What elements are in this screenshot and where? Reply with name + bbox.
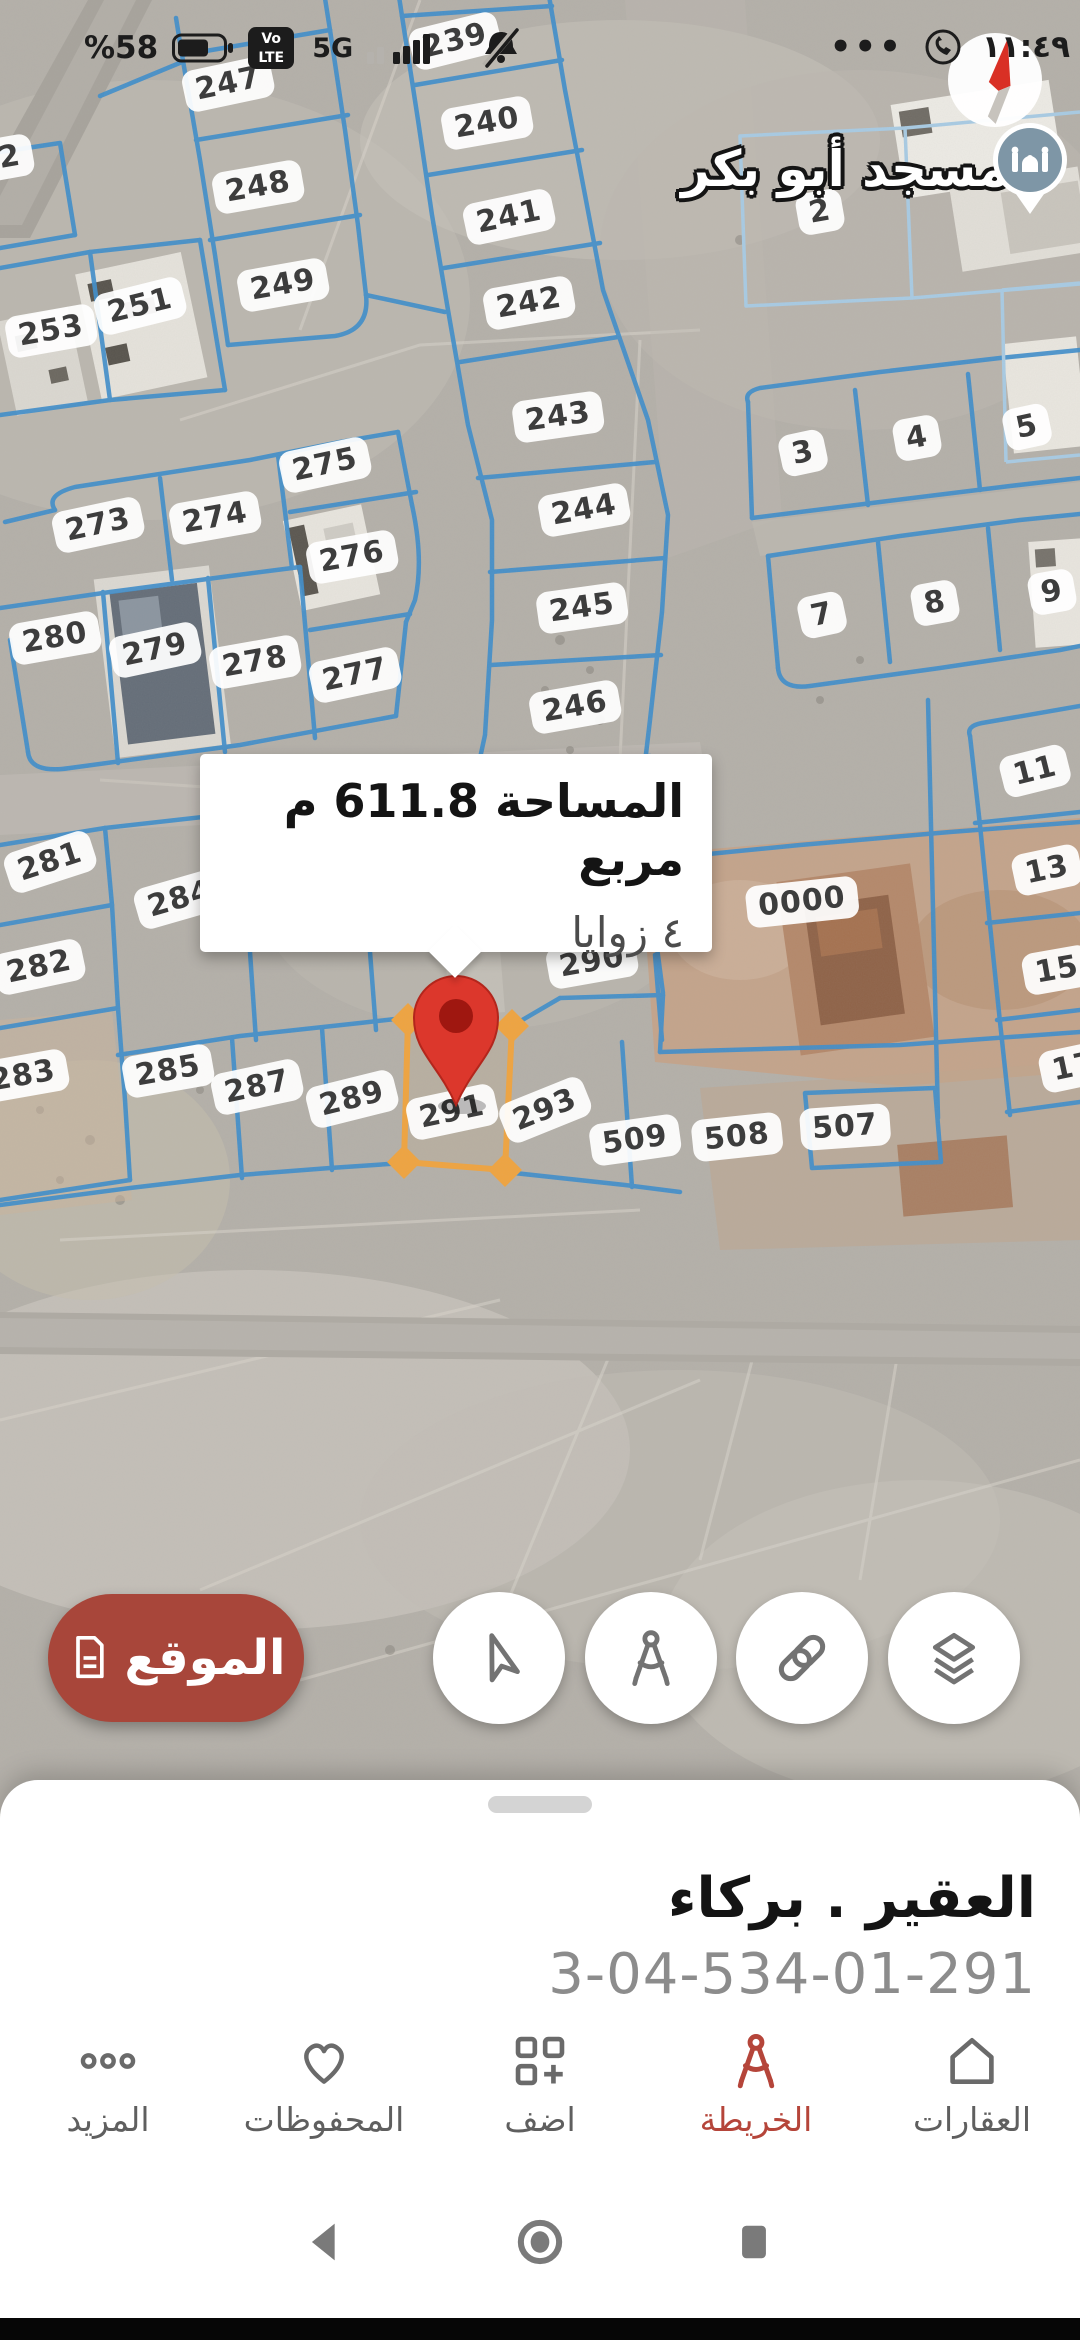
clock-time: ١١:٤٩: [982, 29, 1070, 65]
my-location-button[interactable]: [433, 1592, 565, 1724]
layers-button[interactable]: [888, 1592, 1020, 1724]
android-nav-bar: [0, 2166, 1080, 2318]
nav-item-map[interactable]: الخريطة: [648, 2016, 864, 2166]
share-link-button[interactable]: [736, 1592, 868, 1724]
nav-item-more[interactable]: المزيد: [0, 2016, 216, 2166]
nav-label-add: اضف: [504, 2100, 575, 2139]
link-icon: [770, 1626, 834, 1690]
mosque-label[interactable]: مسجد أبو بكر: [630, 140, 1060, 198]
heart-icon: [293, 2030, 355, 2092]
screen-bottom-bar: [0, 2318, 1080, 2340]
parcel-info-callout[interactable]: المساحة 611.8 م مربع ٤ زوايا: [200, 754, 712, 952]
drafting-compass-icon: [619, 1626, 683, 1690]
nav-label-properties: العقارات: [913, 2100, 1031, 2139]
status-bar: %58 VoLTE 5G •••: [0, 0, 1080, 80]
document-icon: [67, 1632, 111, 1684]
nav-label-more: المزيد: [66, 2100, 149, 2139]
measure-button[interactable]: [585, 1592, 717, 1724]
nav-item-add[interactable]: اضف: [432, 2016, 648, 2166]
home-button[interactable]: [512, 2214, 568, 2270]
volte-badge: VoLTE: [248, 27, 294, 69]
back-button[interactable]: [300, 2216, 352, 2268]
more-dots-icon: [77, 2030, 139, 2092]
nav-item-saved[interactable]: المحفوظات: [216, 2016, 432, 2166]
battery-icon: [172, 31, 234, 65]
add-grid-icon: [509, 2030, 571, 2092]
bottom-navigation: المزيد المحفوظات اضف: [0, 2016, 1080, 2166]
location-button[interactable]: الموقع: [48, 1594, 304, 1722]
location-title: العقير . بركاء: [668, 1866, 1036, 1931]
phone-screen: 2392402412422432442452462472482492522512…: [0, 0, 1080, 2340]
parcel-area-text: المساحة 611.8 م مربع: [220, 772, 684, 888]
map-compass-icon: [725, 2030, 787, 2092]
more-dots: •••: [830, 27, 904, 67]
layers-icon: [922, 1626, 986, 1690]
navigation-arrow-icon: [467, 1626, 531, 1690]
parcel-code: 3-04-534-01-291: [548, 1942, 1036, 2007]
signal-bars-icon: [367, 30, 463, 66]
whatsapp-icon: [922, 26, 964, 68]
network-type: 5G: [312, 33, 353, 64]
nav-label-saved: المحفوظات: [244, 2100, 405, 2139]
drag-handle[interactable]: [488, 1796, 592, 1813]
location-button-label: الموقع: [125, 1630, 286, 1686]
nav-label-map: الخريطة: [700, 2100, 813, 2139]
nav-item-properties[interactable]: العقارات: [864, 2016, 1080, 2166]
mute-bell-icon: [477, 26, 525, 70]
home-icon: [941, 2030, 1003, 2092]
battery-percent: %58: [84, 30, 158, 66]
recents-button[interactable]: [728, 2216, 780, 2268]
